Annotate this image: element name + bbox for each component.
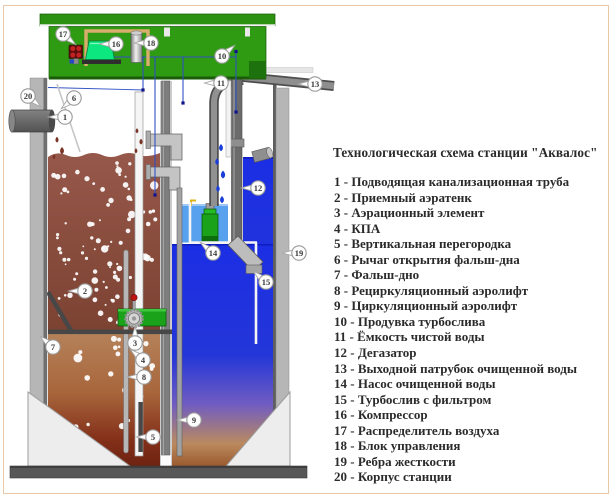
legend-item: 16 - Компрессор: [334, 407, 611, 423]
station-diagram: 1234567891011121314151617181920: [0, 0, 335, 499]
legend-item: 9 - Циркуляционный аэролифт: [334, 298, 611, 314]
diagram-title: Технологическая схема станции "Аквалос": [333, 145, 611, 161]
station-diagram-svg: 1234567891011121314151617181920: [0, 0, 335, 499]
svg-text:20: 20: [24, 91, 33, 101]
legend-list: 1 - Подводящая канализационная труба2 - …: [334, 174, 611, 485]
svg-text:12: 12: [254, 183, 263, 193]
legend-item: 20 - Корпус станции: [334, 469, 611, 485]
svg-text:17: 17: [59, 29, 68, 39]
svg-text:18: 18: [147, 38, 156, 48]
legend-item: 12 - Дегазатор: [334, 345, 611, 361]
screenshot-root: 1234567891011121314151617181920 Технолог…: [0, 0, 612, 499]
svg-text:1: 1: [63, 112, 67, 122]
legend-item: 5 - Вертикальная перегородка: [334, 236, 611, 252]
control-unit: [131, 31, 142, 63]
svg-text:15: 15: [262, 277, 271, 287]
legend-item: 4 - КПА: [334, 221, 611, 237]
legend-item: 6 - Рычаг открытия фальш-дна: [334, 252, 611, 268]
vertical-partition: [138, 402, 142, 452]
legend-item: 1 - Подводящая канализационная труба: [334, 174, 611, 190]
circulation-airlift-lower: [177, 188, 182, 456]
legend-item: 14 - Насос очищенной воды: [334, 376, 611, 392]
svg-text:8: 8: [142, 372, 146, 382]
svg-text:5: 5: [151, 432, 155, 442]
svg-text:10: 10: [218, 51, 227, 61]
legend-item: 7 - Фальш-дно: [334, 267, 611, 283]
false-bottom-lever-rod: [124, 250, 129, 453]
svg-text:19: 19: [295, 248, 304, 258]
clean-water-pump: [202, 204, 218, 242]
inlet-sewer-pipe: [9, 110, 55, 132]
legend-item: 17 - Распределитель воздуха: [334, 423, 611, 439]
legend-item: 2 - Приемный аэратенк: [334, 190, 611, 206]
legend-item: 18 - Блок управления: [334, 438, 611, 454]
legend-panel: Технологическая схема станции "Аквалос" …: [333, 145, 611, 485]
svg-text:6: 6: [72, 93, 76, 103]
legend-item: 3 - Аэрационный элемент: [334, 205, 611, 221]
legend-item: 15 - Турбослив с фильтром: [334, 392, 611, 408]
svg-text:9: 9: [192, 415, 196, 425]
svg-text:14: 14: [209, 248, 218, 258]
svg-text:3: 3: [133, 338, 137, 348]
legend-item: 11 - Ёмкость чистой воды: [334, 329, 611, 345]
svg-text:13: 13: [311, 79, 320, 89]
legend-item: 19 - Ребра жесткости: [334, 454, 611, 470]
svg-text:16: 16: [112, 39, 121, 49]
false-bottom: [48, 330, 172, 335]
legend-item: 13 - Выходной патрубок очищенной воды: [334, 361, 611, 377]
kpa-pipe: [135, 92, 143, 456]
svg-text:2: 2: [83, 286, 87, 296]
legend-item: 8 - Рециркуляционный аэролифт: [334, 283, 611, 299]
svg-text:11: 11: [217, 78, 225, 88]
legend-item: 10 - Продувка турбослива: [334, 314, 611, 330]
lid-rim: [40, 14, 275, 26]
turbodrain-riser: [232, 73, 243, 245]
